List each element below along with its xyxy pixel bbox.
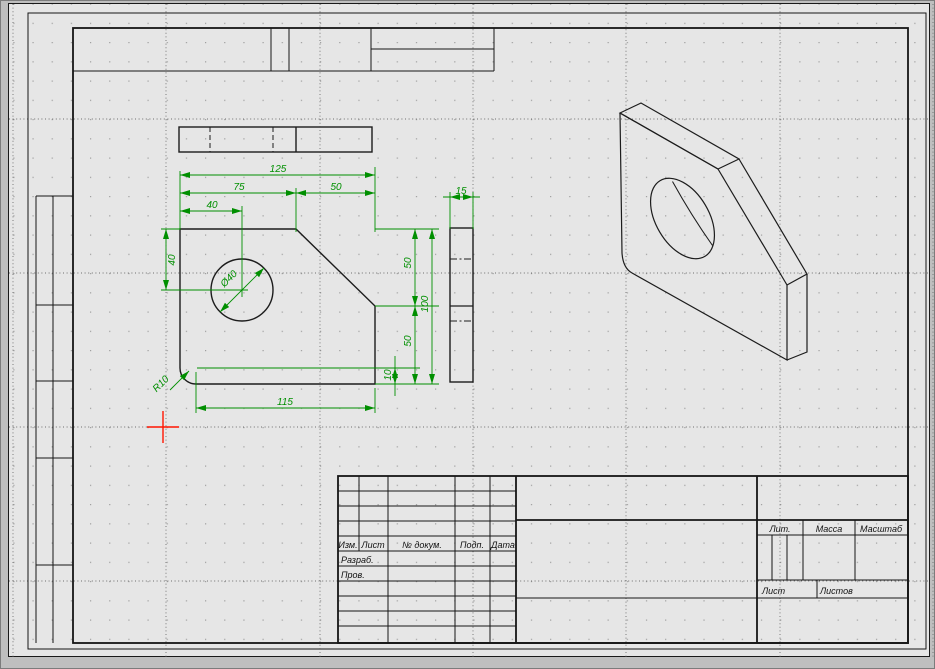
dim-upper-height: 50: [403, 257, 414, 269]
label-lit: Лит.: [768, 524, 790, 534]
label-razrab: Разраб.: [341, 555, 374, 565]
dim-hole-y: 40: [167, 254, 178, 266]
label-podp: Подп.: [460, 540, 484, 550]
label-massa: Масса: [816, 524, 843, 534]
dim-bottom-offset: 10: [383, 369, 394, 381]
dim-left-width: 75: [233, 182, 245, 193]
dim-total-height: 100: [420, 295, 431, 312]
label-izm: Изм.: [338, 540, 357, 550]
label-masshtab: Масштаб: [860, 524, 903, 534]
label-date: Дата: [490, 540, 515, 550]
drawing-canvas[interactable]: Изм. Лист № докум. Подп. Дата Разраб. Пр…: [0, 0, 935, 669]
dim-thickness: 15: [455, 186, 467, 197]
label-doc-no: № докум.: [402, 540, 442, 550]
app-window: Изм. Лист № докум. Подп. Дата Разраб. Пр…: [0, 0, 935, 669]
dim-hole-x: 40: [206, 200, 218, 211]
label-list: Лист: [360, 540, 385, 550]
label-sheet: Лист: [761, 586, 786, 596]
label-prov: Пров.: [341, 570, 365, 580]
dim-total-width: 125: [270, 164, 287, 175]
dim-chamfer-width: 50: [330, 182, 342, 193]
dim-bottom-width: 115: [277, 397, 293, 408]
label-sheets: Листов: [819, 586, 853, 596]
dim-lower-height: 50: [403, 335, 414, 347]
grid-dots: [9, 4, 929, 656]
